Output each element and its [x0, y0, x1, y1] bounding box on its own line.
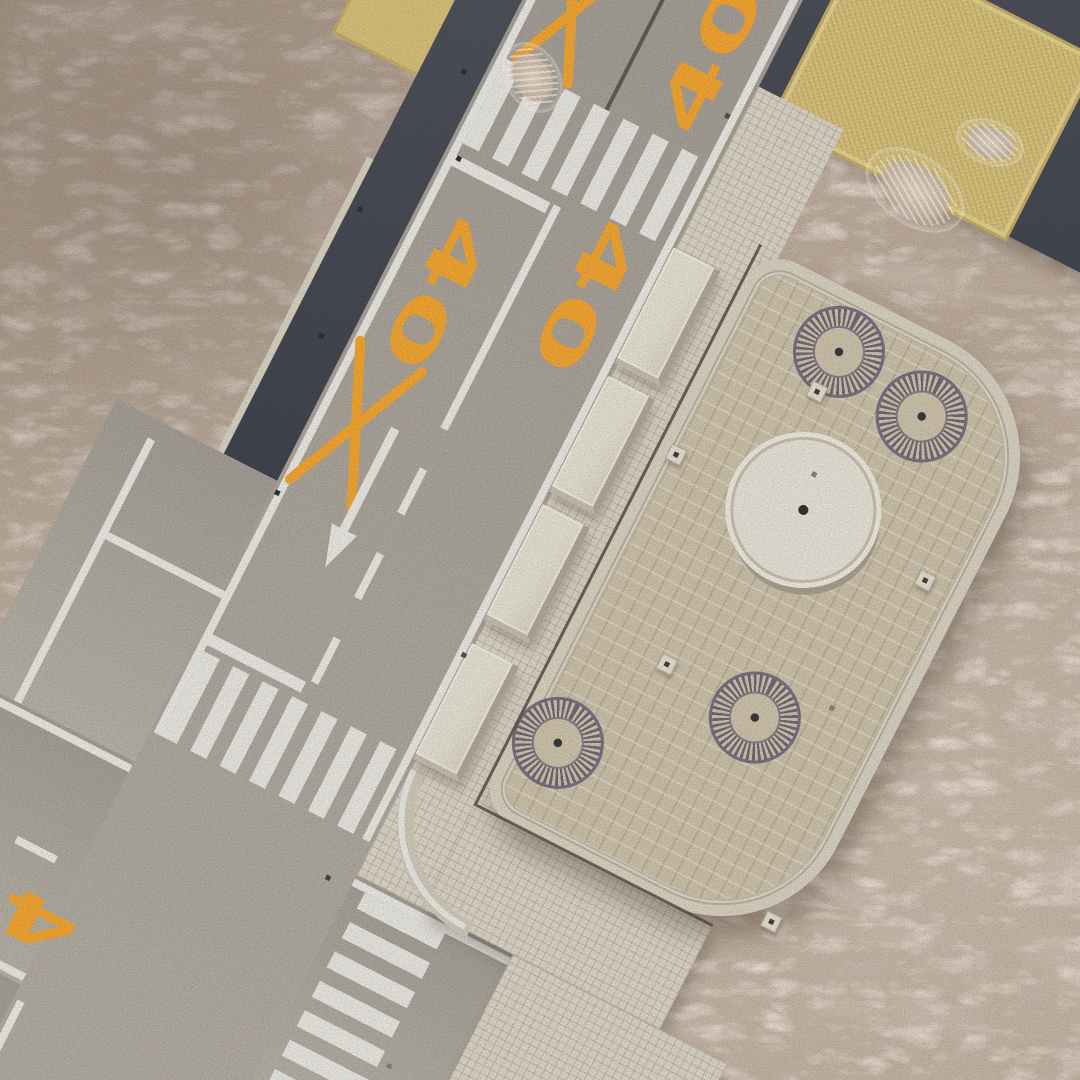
photo-stage: タクシー 40 40 40 40: [0, 0, 1080, 1080]
peg-block: [760, 910, 783, 933]
